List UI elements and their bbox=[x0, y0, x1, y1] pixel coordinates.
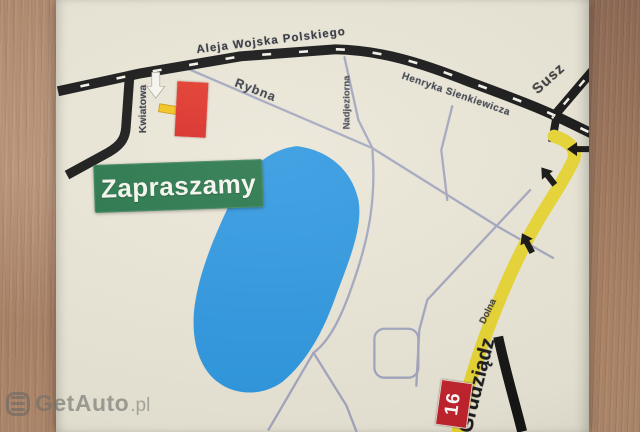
invitation-banner: Zapraszamy bbox=[93, 159, 264, 213]
road-branch-south bbox=[314, 353, 357, 432]
map-graphic bbox=[56, 0, 589, 432]
route-16-number: 16 bbox=[441, 391, 466, 417]
route-16-badge: 16 bbox=[435, 379, 473, 429]
grille-logo-icon bbox=[6, 392, 30, 416]
street-label-nadjeziorna: Nadjeziorna bbox=[341, 76, 352, 130]
street-label-kwiatowa: Kwiatowa bbox=[137, 85, 149, 133]
block-loop bbox=[374, 329, 418, 378]
road-to-grudziadz bbox=[498, 337, 522, 432]
invitation-label: Zapraszamy bbox=[100, 168, 256, 204]
wooden-table-right bbox=[588, 0, 640, 432]
wooden-table-left bbox=[0, 0, 57, 432]
photo-of-map: Aleja Wojska Polskiego Rybna Kwiatowa Na… bbox=[0, 0, 640, 432]
watermark-brand: GetAuto bbox=[35, 390, 129, 417]
road-connector bbox=[441, 106, 452, 200]
map-paper: Aleja Wojska Polskiego Rybna Kwiatowa Na… bbox=[56, 0, 589, 432]
watermark-tld: .pl bbox=[130, 395, 150, 417]
watermark: GetAuto .pl bbox=[6, 390, 150, 417]
location-marker bbox=[175, 81, 209, 138]
